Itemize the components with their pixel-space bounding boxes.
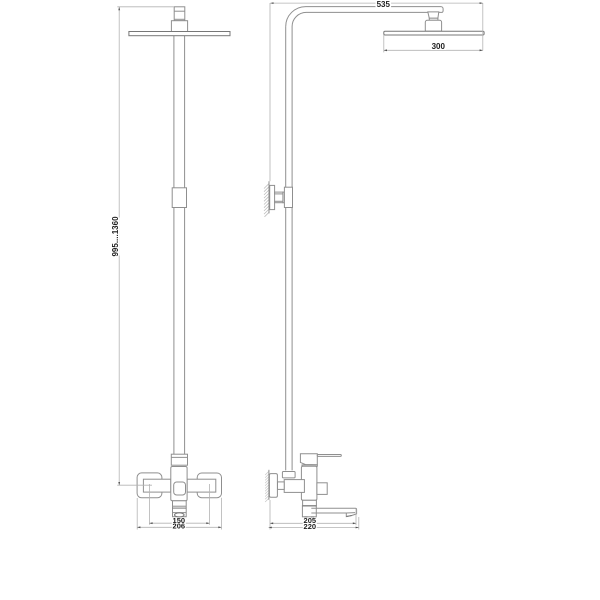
svg-text:300: 300: [432, 42, 446, 51]
svg-text:995....1360: 995....1360: [111, 216, 120, 257]
svg-text:206: 206: [173, 522, 186, 531]
svg-text:535: 535: [377, 0, 391, 9]
svg-text:220: 220: [304, 522, 317, 531]
